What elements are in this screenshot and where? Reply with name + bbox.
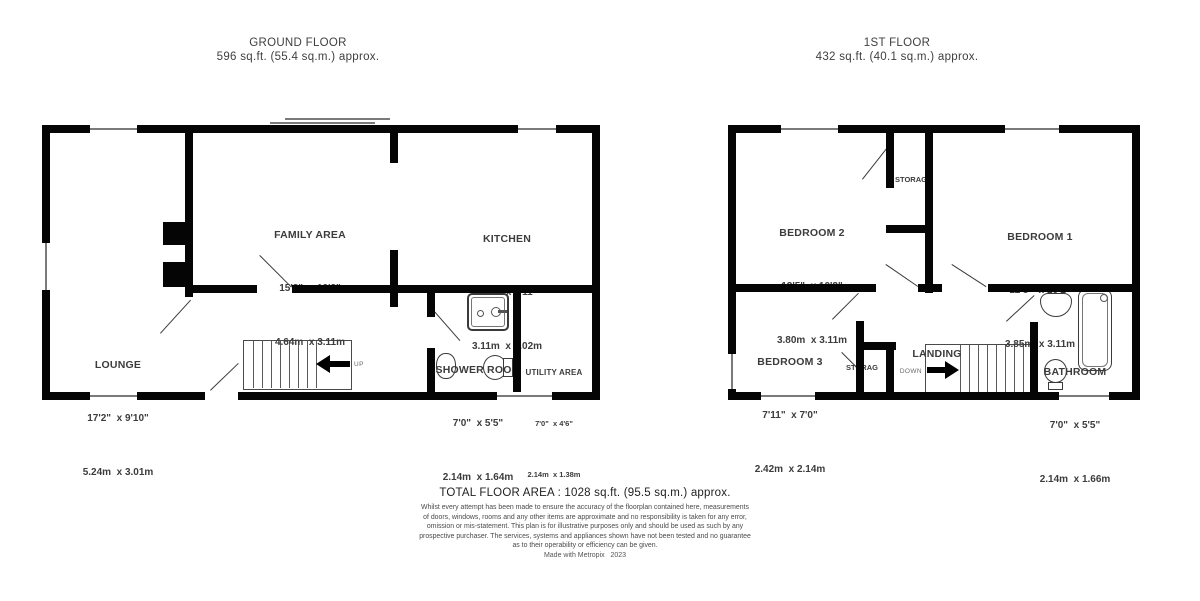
wall xyxy=(390,250,398,307)
window xyxy=(1005,128,1059,130)
stair-tread xyxy=(271,341,272,388)
disclaimer-line: Whilst every attempt has been made to en… xyxy=(419,503,751,513)
wall xyxy=(988,284,1132,292)
stair-tread xyxy=(253,341,254,388)
wall xyxy=(736,284,876,292)
door-swing xyxy=(885,264,918,287)
door-swing xyxy=(210,363,239,391)
stair-tread xyxy=(262,341,263,388)
ground-floor-plan: UP FAMILY AREA 15'3" x 10'2" 4.64m x 3.1… xyxy=(42,125,600,400)
wall xyxy=(886,350,894,400)
first-floor-plan: DOWN STORAG STORAG BEDROOM 2 12'5" x 10'… xyxy=(728,125,1140,400)
window xyxy=(90,128,137,130)
room-label-landing: LANDING xyxy=(912,307,961,402)
wall xyxy=(390,133,398,163)
disclaimer-line: of doors, windows, rooms and any other i… xyxy=(419,513,751,523)
door-swing xyxy=(160,300,191,334)
room-label-bathroom: BATHROOM 7'0" x 5'5" 2.14m x 1.66m xyxy=(1040,325,1111,528)
chimney-breast xyxy=(163,262,185,287)
disclaimer-line: prospective purchaser. The services, sys… xyxy=(419,532,751,542)
window-mark xyxy=(285,118,390,120)
window xyxy=(518,128,556,130)
total-floor-area: TOTAL FLOOR AREA : 1028 sq.ft. (95.5 sq.… xyxy=(419,487,751,499)
room-label-bedroom-3: BEDROOM 3 7'11" x 7'0" 2.42m x 2.14m xyxy=(755,315,826,518)
wall xyxy=(728,125,736,354)
wall xyxy=(42,290,50,400)
window xyxy=(731,354,733,389)
first-floor-title-text: 1ST FLOOR xyxy=(816,36,979,50)
chimney-breast xyxy=(163,222,185,245)
footer: TOTAL FLOOR AREA : 1028 sq.ft. (95.5 sq.… xyxy=(419,487,751,559)
wall xyxy=(815,392,1059,400)
wall xyxy=(238,392,497,400)
wall xyxy=(1132,125,1140,400)
bath-tap xyxy=(1100,294,1108,302)
door-swing xyxy=(951,264,986,287)
wall xyxy=(137,125,518,133)
wall xyxy=(838,125,1005,133)
floorplan-page: GROUND FLOOR 596 sq.ft. (55.4 sq.m.) app… xyxy=(0,0,1200,601)
credit-line: Made with Metropix 2023 xyxy=(419,552,751,559)
stair-tread xyxy=(987,345,988,395)
wall xyxy=(137,392,205,400)
wall xyxy=(925,133,933,293)
wall xyxy=(42,125,50,243)
wall xyxy=(185,133,193,297)
stair-tread xyxy=(978,345,979,395)
wall xyxy=(193,285,257,293)
up-label: UP xyxy=(354,361,364,368)
wall xyxy=(886,133,894,188)
disclaimer: Whilst every attempt has been made to en… xyxy=(419,503,751,551)
wall xyxy=(513,293,521,392)
disclaimer-line: as to their operability or efficiency ca… xyxy=(419,541,751,551)
wall xyxy=(292,285,592,293)
first-floor-area-text: 432 sq.ft. (40.1 sq.m.) approx. xyxy=(816,50,979,64)
wall xyxy=(886,225,933,233)
wall xyxy=(856,342,896,350)
ground-floor-title-text: GROUND FLOOR xyxy=(217,36,380,50)
stair-tread xyxy=(969,345,970,395)
door-swing xyxy=(862,146,889,180)
window xyxy=(45,243,47,290)
first-floor-title: 1ST FLOOR 432 sq.ft. (40.1 sq.m.) approx… xyxy=(816,36,979,64)
wall xyxy=(918,284,942,292)
wall xyxy=(1030,322,1038,400)
wall xyxy=(592,125,600,400)
wall xyxy=(1059,125,1140,133)
wall xyxy=(427,348,435,392)
storage-label: STORAG xyxy=(895,175,927,184)
stair-tread xyxy=(996,345,997,395)
wall xyxy=(427,293,435,317)
wall xyxy=(728,389,736,400)
ground-floor-title: GROUND FLOOR 596 sq.ft. (55.4 sq.m.) app… xyxy=(217,36,380,64)
wall xyxy=(856,321,864,400)
ground-floor-area-text: 596 sq.ft. (55.4 sq.m.) approx. xyxy=(217,50,380,64)
room-label-lounge: LOUNGE 17'2" x 9'10" 5.24m x 3.01m xyxy=(83,318,154,521)
window-mark xyxy=(270,122,375,124)
window xyxy=(781,128,838,130)
disclaimer-line: omission or mis-statement. This plan is … xyxy=(419,522,751,532)
